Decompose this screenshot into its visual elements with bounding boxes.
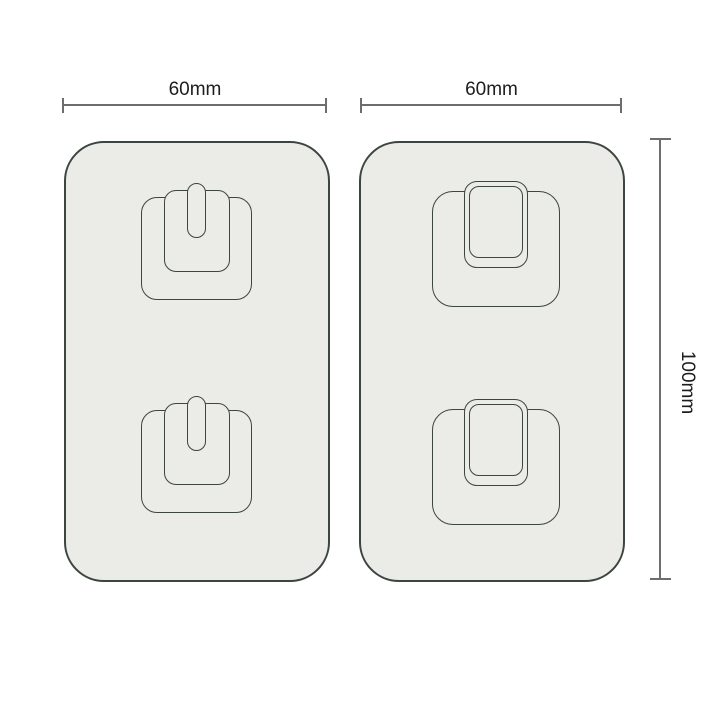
hook-tab-face — [469, 404, 523, 476]
right-width-dimension-line — [361, 104, 622, 106]
hook-tab-face — [469, 186, 523, 258]
hook-prong — [187, 183, 206, 238]
left-pad-bottom-hook — [141, 396, 252, 513]
right-width-dimension-tick-left — [360, 98, 362, 113]
left-width-dimension-tick-left — [62, 98, 64, 113]
dimension-diagram: 60mm 60mm 100mm — [0, 0, 720, 720]
left-pad-top-hook — [141, 183, 252, 300]
height-dimension-tick-top — [650, 138, 671, 140]
hook-prong — [187, 396, 206, 451]
left-width-dimension-line — [63, 104, 327, 106]
right-width-dimension-label: 60mm — [361, 80, 622, 100]
left-width-dimension-label: 60mm — [63, 80, 327, 100]
left-width-dimension-tick-right — [325, 98, 327, 113]
right-width-dimension-tick-right — [620, 98, 622, 113]
right-adhesive-pad — [359, 141, 625, 582]
right-pad-top-hook — [432, 181, 560, 307]
left-adhesive-pad — [64, 141, 330, 582]
right-pad-bottom-hook — [432, 399, 560, 525]
height-dimension-label: 100mm — [677, 348, 697, 417]
height-dimension-tick-bottom — [650, 578, 671, 580]
height-dimension-line — [659, 139, 661, 580]
